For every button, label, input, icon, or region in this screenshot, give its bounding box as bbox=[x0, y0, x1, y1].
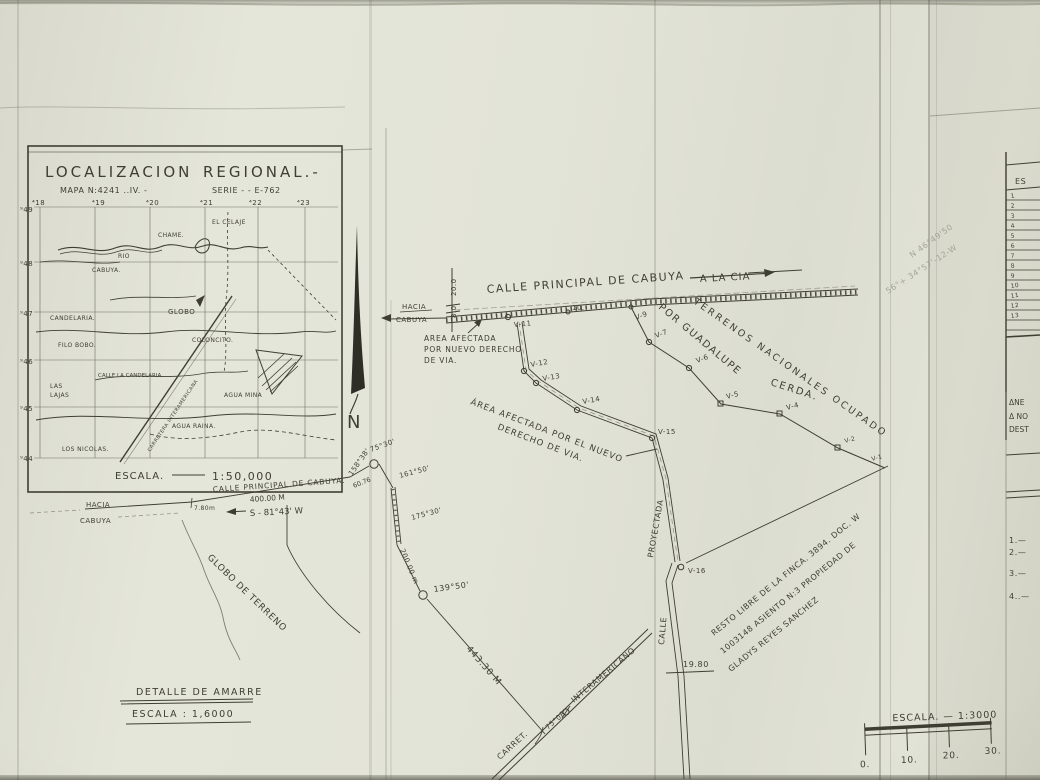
svg-text:Δ NO: Δ NO bbox=[1009, 412, 1028, 421]
svg-text:6: 6 bbox=[1010, 242, 1015, 250]
detalle-de-amarre: DETALLE DE AMARRE ESCALA : 1,6000 bbox=[120, 687, 263, 724]
svg-text:30.: 30. bbox=[984, 746, 1001, 757]
station-v9: V-9 bbox=[634, 310, 649, 322]
station-v4: V-4 bbox=[785, 401, 800, 412]
place-los-nicolas: LOS NICOLAS. bbox=[62, 446, 109, 453]
svg-text:13: 13 bbox=[1010, 312, 1019, 320]
side-table-row-numbers: 1 2 3 4 5 6 7 8 9 10 11 12 13 bbox=[1010, 192, 1019, 320]
place-chame: CHAME. bbox=[158, 232, 184, 239]
calle-proyectada: V-16 PROYECTADA CALLE 19.80 bbox=[646, 466, 888, 779]
svg-text:20.: 20. bbox=[943, 751, 960, 762]
tie-detail: HACIA CABUYA CALLE PRINCIPAL DE CABUYA. … bbox=[30, 476, 360, 660]
svg-text:9: 9 bbox=[1010, 272, 1015, 280]
north-label: N bbox=[347, 412, 360, 433]
svg-text:5: 5 bbox=[1010, 232, 1015, 240]
svg-text:DEST: DEST bbox=[1009, 425, 1029, 434]
svg-text:⁴23: ⁴23 bbox=[297, 199, 310, 207]
station-v14: V-14 bbox=[582, 395, 601, 406]
area-afectada-note-1: AREA AFECTADA POR NUEVO DERECHO DE VIA. bbox=[424, 319, 522, 365]
svg-text:ÁREA AFECTADA POR EL NUEVO: ÁREA AFECTADA POR EL NUEVO bbox=[469, 396, 625, 465]
place-el-celaje: EL CELAJE bbox=[212, 219, 246, 226]
place-coloncito: COLONCITO. bbox=[192, 337, 233, 344]
road-stations: V-11 10. V-9 bbox=[505, 304, 648, 329]
dist-200: 200.00 m bbox=[398, 548, 420, 586]
svg-text:⁹45: ⁹45 bbox=[20, 405, 33, 413]
side-numbered-list: 1.— 2.— 3.— 4..— bbox=[1009, 536, 1030, 601]
side-table-header: ES bbox=[1015, 177, 1026, 186]
place-filo-bobo: FILO BOBO. bbox=[58, 342, 96, 349]
road-width-20: 20.0 bbox=[450, 278, 458, 296]
svg-text:4: 4 bbox=[1010, 222, 1015, 230]
inset-serie: SERIE - - E-762 bbox=[212, 186, 281, 195]
svg-text:⁹49: ⁹49 bbox=[20, 206, 33, 214]
svg-text:CABUYA: CABUYA bbox=[396, 316, 427, 324]
area-afectada-note-2: ÁREA AFECTADA POR EL NUEVO DERECHO DE VI… bbox=[469, 396, 657, 465]
place-cabuya: CABUYA. bbox=[92, 267, 121, 274]
scale-bar-3000: ESCALA. — 1:3000 0. 10. 20. 30. bbox=[858, 709, 1002, 770]
inset-title-2: REGIONAL.- bbox=[203, 163, 321, 181]
station-v5: V-5 bbox=[725, 390, 739, 401]
road-label: CALLE PRINCIPAL DE CABUYA bbox=[486, 269, 685, 296]
svg-text:⁴19: ⁴19 bbox=[92, 199, 105, 207]
dist-60-76: 60.76 bbox=[352, 475, 372, 489]
place-carretera: CARRETERA INTERAMERICANA bbox=[147, 379, 200, 454]
angle-175-30: 175°30' bbox=[410, 506, 442, 522]
svg-text:DETALLE DE AMARRE: DETALLE DE AMARRE bbox=[136, 687, 263, 698]
calle-label: CALLE bbox=[657, 616, 668, 645]
svg-text:12: 12 bbox=[1010, 302, 1019, 310]
svg-text:3.—: 3.— bbox=[1009, 569, 1026, 578]
direction-a-la-cia: A LA CIA bbox=[690, 269, 775, 285]
svg-text:7: 7 bbox=[1010, 252, 1015, 260]
svg-text:⁴21: ⁴21 bbox=[200, 199, 213, 207]
dist-400: 400.00 M bbox=[250, 493, 286, 504]
dist-19-80: 19.80 bbox=[683, 660, 709, 669]
station-v13: V-13 bbox=[542, 372, 561, 383]
side-table: ES 1 2 3 4 5 6 7 8 9 10 11 12 13 ΔNE bbox=[1006, 152, 1040, 780]
place-candelaria: CANDELARIA. bbox=[50, 315, 95, 322]
svg-text:POR GUADALUPE: POR GUADALUPE bbox=[656, 302, 743, 378]
svg-text:⁹44: ⁹44 bbox=[20, 455, 33, 463]
svg-text:DE VIA.: DE VIA. bbox=[424, 356, 457, 365]
carret-label: CARRET. bbox=[495, 729, 529, 761]
place-globo: GLOBO bbox=[168, 308, 195, 316]
svg-text:⁴20: ⁴20 bbox=[146, 199, 159, 207]
svg-text:8: 8 bbox=[1010, 262, 1015, 270]
svg-text:3: 3 bbox=[1010, 212, 1015, 220]
torn-edge bbox=[0, 3, 1040, 6]
cabuya-label: CABUYA bbox=[80, 517, 111, 525]
svg-text:TERRENOS NACIONALES OCUPADO: TERRENOS NACIONALES OCUPADO bbox=[690, 296, 889, 440]
svg-text:1.—: 1.— bbox=[1009, 536, 1026, 545]
svg-text:2.—: 2.— bbox=[1009, 548, 1026, 557]
resto-libre-note: RESTO LIBRE DE LA FINCA. 3894. DOC. W 10… bbox=[710, 512, 862, 674]
angle-75-30: 75°30' bbox=[369, 437, 396, 453]
station-10: 10. bbox=[572, 304, 585, 312]
svg-text:⁹47: ⁹47 bbox=[20, 310, 33, 318]
svg-text:1003148 ASIENTO N:3 PROPIEDAD: 1003148 ASIENTO N:3 PROPIEDAD DE bbox=[719, 541, 858, 656]
globo-de-terreno-label: GLOBO DE TERRENO bbox=[205, 553, 288, 634]
inset-title: LOCALIZACION bbox=[45, 163, 192, 181]
station-v7: V-7 bbox=[654, 328, 669, 340]
angle-139-50: 139°50' bbox=[433, 580, 470, 594]
place-lajas: LAJAS bbox=[50, 392, 69, 399]
svg-text:ESCALA : 1,6000: ESCALA : 1,6000 bbox=[132, 709, 234, 720]
angle-158-38: 158°38' bbox=[347, 447, 371, 477]
place-agua-raina: AGUA RAINA. bbox=[172, 423, 216, 430]
inset-regional-map: LOCALIZACION REGIONAL.- MAPA N:4241 ..IV… bbox=[20, 146, 342, 492]
station-v1: V-1 bbox=[871, 453, 883, 463]
bearing-label: S - 81°43' W bbox=[250, 506, 304, 519]
offset-7-80: 7.80m bbox=[194, 505, 215, 512]
svg-text:A LA CIA: A LA CIA bbox=[700, 271, 751, 285]
svg-text:10: 10 bbox=[1010, 282, 1019, 290]
svg-text:⁹46: ⁹46 bbox=[20, 358, 33, 366]
interamericana-road: CARRET. 75°08' INTERAMERICANO bbox=[492, 629, 652, 780]
inset-scale-word: ESCALA. bbox=[115, 471, 164, 482]
svg-text:⁹48: ⁹48 bbox=[20, 260, 33, 268]
scanned-survey-map: LOCALIZACION REGIONAL.- MAPA N:4241 ..IV… bbox=[0, 0, 1040, 780]
svg-text:2: 2 bbox=[1010, 202, 1015, 210]
dist-443-30: 443.30 M bbox=[464, 644, 503, 687]
pencil-notes: N 46°49'50 56°+ 34°57'-12-W bbox=[884, 222, 959, 295]
svg-text:POR NUEVO DERECHO: POR NUEVO DERECHO bbox=[424, 345, 522, 354]
svg-text:⁴22: ⁴22 bbox=[249, 199, 262, 207]
station-v2: V-2 bbox=[844, 435, 856, 445]
proyectada-label: PROYECTADA bbox=[646, 499, 665, 559]
station-v6: V-6 bbox=[695, 353, 710, 365]
place-rio: RIO bbox=[118, 253, 130, 260]
station-v11: V-11 bbox=[513, 319, 531, 329]
station-v16: V-16 bbox=[688, 567, 706, 575]
traverse-bend-angles: 158°38' 75°30' 60.76 161°50' 175°30' 200… bbox=[347, 437, 545, 734]
svg-text:ΔNE: ΔNE bbox=[1009, 398, 1025, 407]
interamericano-label: INTERAMERICANO bbox=[570, 646, 638, 705]
place-las: LAS bbox=[50, 383, 63, 390]
label-dash bbox=[748, 270, 802, 273]
place-agua-mina: AGUA MINA bbox=[224, 392, 263, 399]
svg-text:4..—: 4..— bbox=[1009, 592, 1030, 601]
angle-161-50: 161°50' bbox=[398, 464, 430, 480]
road-width-8: 8.0 bbox=[450, 305, 458, 318]
svg-text:10.: 10. bbox=[901, 755, 918, 766]
traverse-right: V-7 V-6 V-5 V-4 V-2 V-1 bbox=[631, 307, 885, 468]
inset-map-number: MAPA N:4241 ..IV. - bbox=[60, 186, 148, 195]
hacia-label: HACIA bbox=[86, 501, 110, 509]
svg-text:11: 11 bbox=[1010, 292, 1019, 300]
svg-text:⁴18: ⁴18 bbox=[32, 199, 45, 207]
angle-75-08: 75°08' bbox=[544, 708, 569, 732]
station-v12: V-12 bbox=[530, 358, 549, 369]
inset-place-labels: EL CELAJE CHAME. RIO CABUYA. GLOBO CANDE… bbox=[50, 219, 263, 453]
north-arrow: N bbox=[347, 225, 365, 433]
station-v15: V-15 bbox=[658, 428, 676, 436]
place-calle-candelaria: CALLE LA CANDELARIA. bbox=[98, 373, 163, 379]
svg-text:HACIA: HACIA bbox=[402, 303, 426, 311]
svg-text:AREA AFECTADA: AREA AFECTADA bbox=[424, 334, 496, 343]
svg-text:1: 1 bbox=[1010, 192, 1015, 200]
svg-text:0.: 0. bbox=[860, 760, 871, 770]
direction-hacia-cabuya: HACIA CABUYA bbox=[396, 303, 432, 324]
terrenos-nacionales-labels: TERRENOS NACIONALES OCUPADO POR GUADALUP… bbox=[656, 296, 889, 440]
